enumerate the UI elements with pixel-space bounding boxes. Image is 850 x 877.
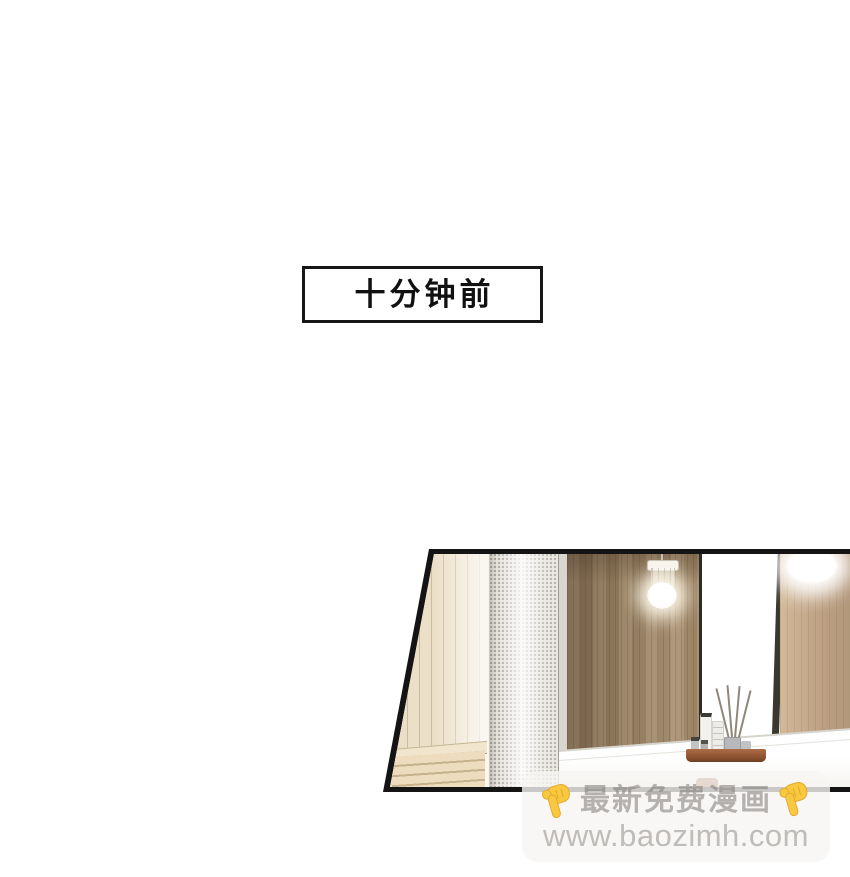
comic-page: 十分钟前 [0,0,850,877]
comic-panel [383,549,850,792]
watermark-title: 最新免费漫画 [580,786,772,816]
caption-box: 十分钟前 [302,266,543,323]
pointing-hand-icon [774,777,815,820]
wooden-tray [686,749,766,762]
watermark-overlay: 最新免费漫画 www.baozimh.com [522,771,830,862]
caption-text: 十分钟前 [351,279,495,310]
watermark-url: www.baozimh.com [543,820,809,851]
panel-scene [383,549,850,792]
watermark-line1: 最新免费漫画 [541,783,811,819]
pointing-hand-icon [537,779,578,822]
lamp-reflection-glow [787,549,837,583]
pendant-lamp-globe [647,582,677,609]
mesh-screen [489,549,567,792]
